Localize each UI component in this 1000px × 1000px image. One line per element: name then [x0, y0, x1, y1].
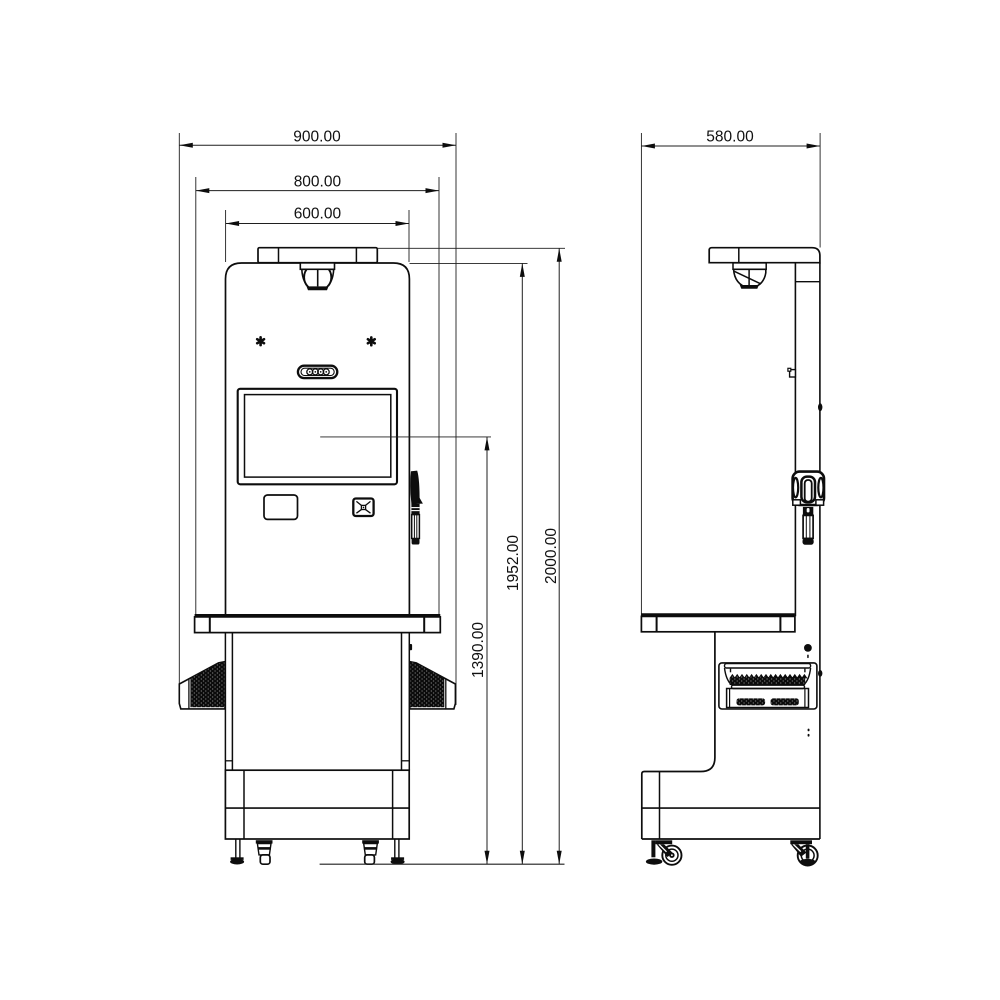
svg-text:1952.00: 1952.00	[505, 535, 522, 591]
svg-text:580.00: 580.00	[706, 129, 754, 146]
svg-text:1390.00: 1390.00	[470, 622, 487, 678]
svg-text:600.00: 600.00	[294, 206, 342, 223]
svg-text:800.00: 800.00	[294, 173, 342, 190]
svg-text:2000.00: 2000.00	[543, 528, 560, 584]
svg-text:900.00: 900.00	[293, 128, 341, 145]
